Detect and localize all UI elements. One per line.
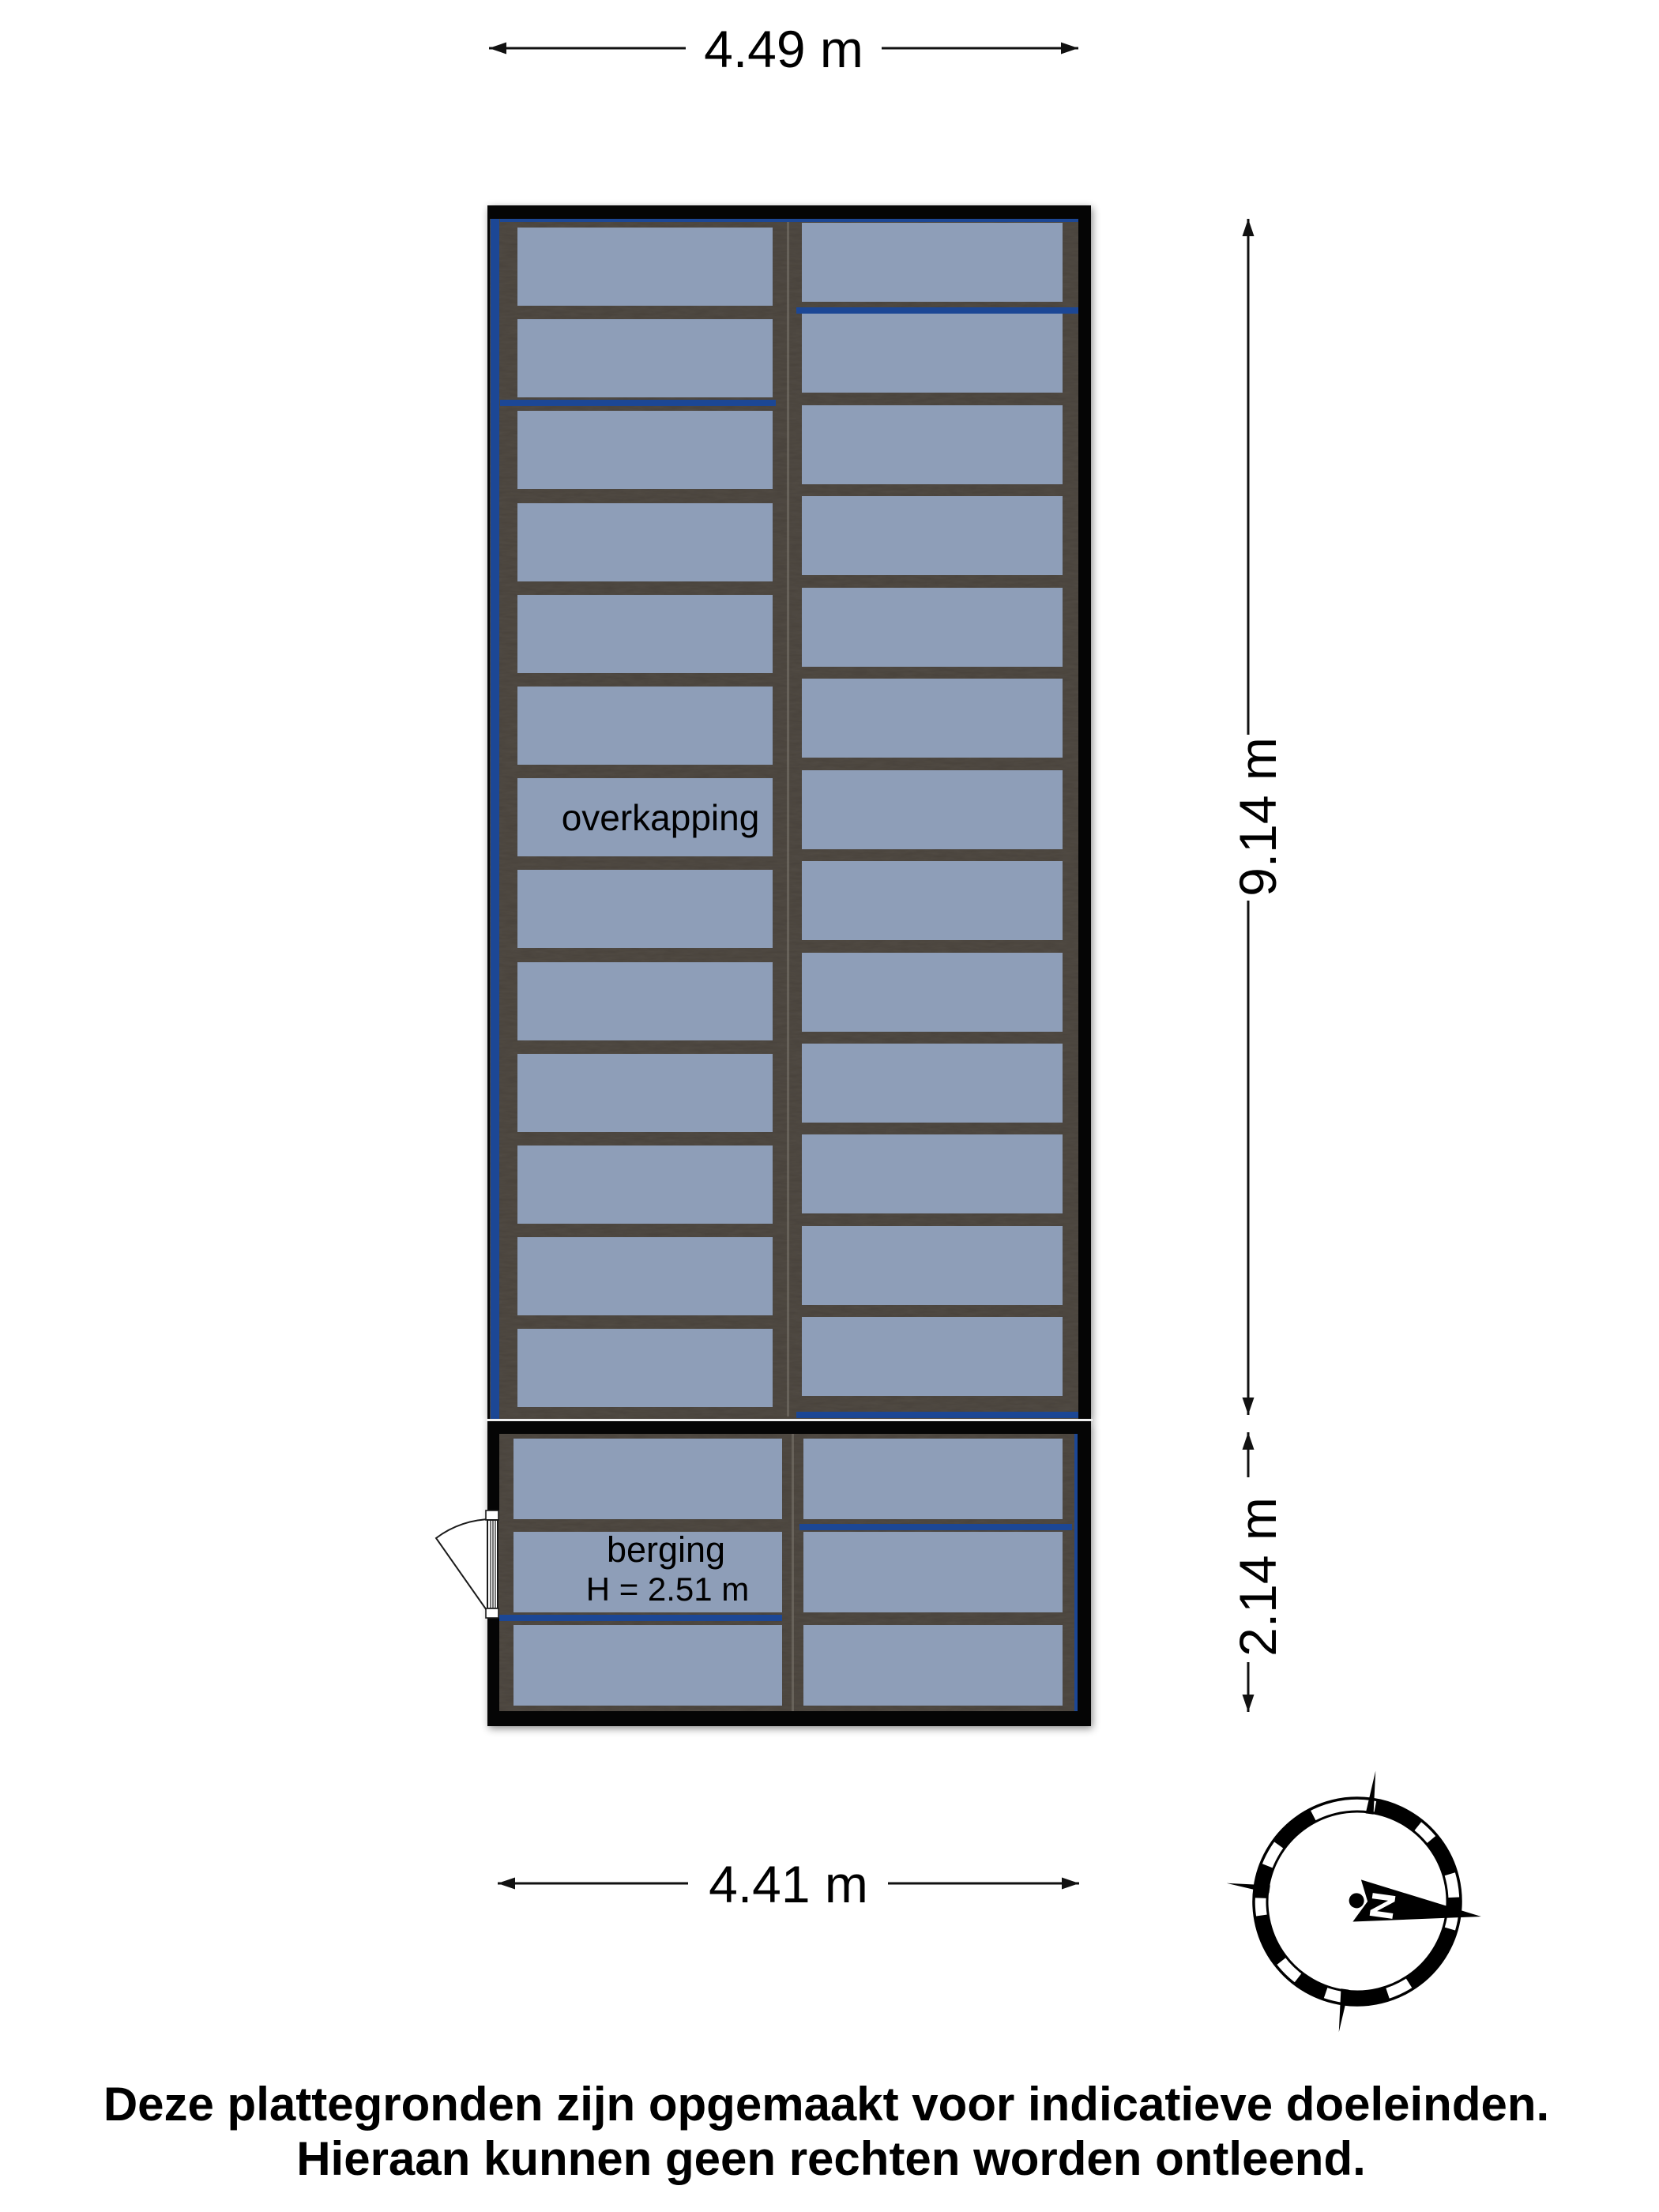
svg-text:4.41 m: 4.41 m	[709, 1855, 868, 1913]
svg-text:H = 2.51 m: H = 2.51 m	[586, 1571, 750, 1608]
svg-text:2.14 m: 2.14 m	[1228, 1497, 1287, 1657]
svg-text:9.14 m: 9.14 m	[1228, 737, 1287, 897]
svg-text:4.49 m: 4.49 m	[704, 20, 863, 78]
svg-text:Hieraan kunnen geen rechten wo: Hieraan kunnen geen rechten worden ontle…	[296, 2132, 1366, 2185]
svg-text:berging: berging	[607, 1529, 725, 1570]
svg-text:overkapping: overkapping	[562, 797, 760, 838]
svg-text:Deze plattegronden zijn opgema: Deze plattegronden zijn opgemaakt voor i…	[103, 2078, 1549, 2131]
